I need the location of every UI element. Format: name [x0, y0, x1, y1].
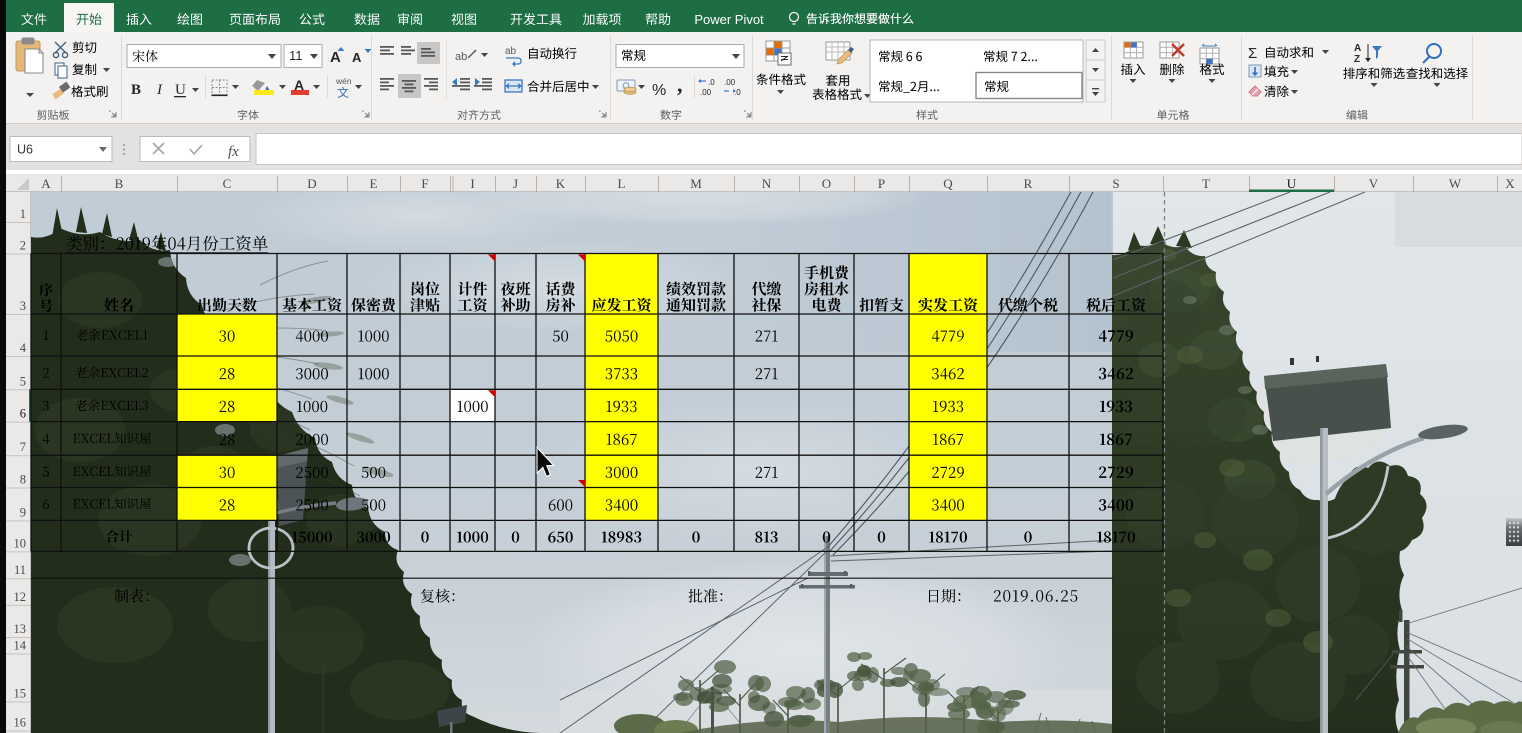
- svg-text:L: L: [618, 176, 626, 191]
- svg-text:11: 11: [289, 48, 303, 63]
- svg-text:U: U: [1287, 176, 1297, 191]
- svg-text:7: 7: [20, 440, 26, 454]
- svg-text:.00: .00: [700, 88, 712, 97]
- svg-text:W: W: [1449, 176, 1462, 191]
- svg-text:B: B: [131, 82, 141, 98]
- svg-text:O: O: [822, 176, 831, 191]
- svg-text:%: %: [652, 82, 666, 99]
- svg-text:V: V: [1369, 176, 1379, 191]
- svg-text:B: B: [115, 176, 124, 191]
- svg-text:U: U: [175, 82, 186, 98]
- svg-text:1: 1: [20, 207, 26, 221]
- svg-text:14: 14: [14, 639, 27, 653]
- svg-text:N: N: [762, 176, 772, 191]
- svg-text:11: 11: [14, 563, 26, 577]
- svg-text:15: 15: [14, 687, 27, 701]
- svg-text:ab: ab: [505, 46, 517, 57]
- svg-text:A: A: [352, 50, 362, 65]
- svg-text:A: A: [1354, 43, 1361, 54]
- svg-text:A: A: [330, 49, 341, 66]
- svg-text:6: 6: [20, 407, 26, 421]
- svg-text:T: T: [1202, 176, 1210, 191]
- svg-text:3: 3: [20, 299, 26, 313]
- svg-text:Σ: Σ: [1248, 45, 1257, 62]
- svg-text:I: I: [156, 82, 163, 98]
- svg-text:4: 4: [20, 341, 27, 355]
- svg-text:Z: Z: [1354, 54, 1360, 65]
- svg-text:R: R: [1024, 176, 1033, 191]
- svg-text:X: X: [1505, 176, 1515, 191]
- svg-text:J: J: [513, 176, 518, 191]
- svg-text:wén: wén: [335, 76, 352, 86]
- svg-text:8: 8: [20, 473, 26, 487]
- svg-text:.00: .00: [724, 78, 736, 87]
- svg-text:.0: .0: [708, 78, 715, 87]
- svg-text:,: ,: [677, 72, 683, 97]
- svg-text:C: C: [223, 176, 232, 191]
- svg-text:U6: U6: [17, 143, 33, 157]
- svg-text:12: 12: [14, 590, 27, 604]
- svg-text:K: K: [556, 176, 566, 191]
- svg-text:A: A: [41, 176, 51, 191]
- svg-text:2: 2: [20, 239, 26, 253]
- svg-text:E: E: [370, 176, 378, 191]
- svg-text:5: 5: [20, 374, 26, 388]
- svg-text:.0: .0: [734, 88, 741, 97]
- svg-text:fx: fx: [228, 144, 239, 160]
- svg-text:P: P: [878, 176, 885, 191]
- svg-text:F: F: [421, 176, 428, 191]
- svg-text:M: M: [690, 176, 702, 191]
- svg-text:13: 13: [14, 622, 27, 636]
- svg-text:D: D: [307, 176, 316, 191]
- svg-text:ab: ab: [455, 51, 467, 63]
- svg-text:Power Pivot: Power Pivot: [694, 12, 764, 27]
- svg-text:S: S: [1112, 176, 1119, 191]
- svg-text:9: 9: [20, 505, 26, 519]
- svg-text:10: 10: [14, 536, 27, 550]
- svg-text:16: 16: [14, 716, 27, 730]
- svg-text:I: I: [470, 176, 474, 191]
- svg-text:Q: Q: [943, 176, 953, 191]
